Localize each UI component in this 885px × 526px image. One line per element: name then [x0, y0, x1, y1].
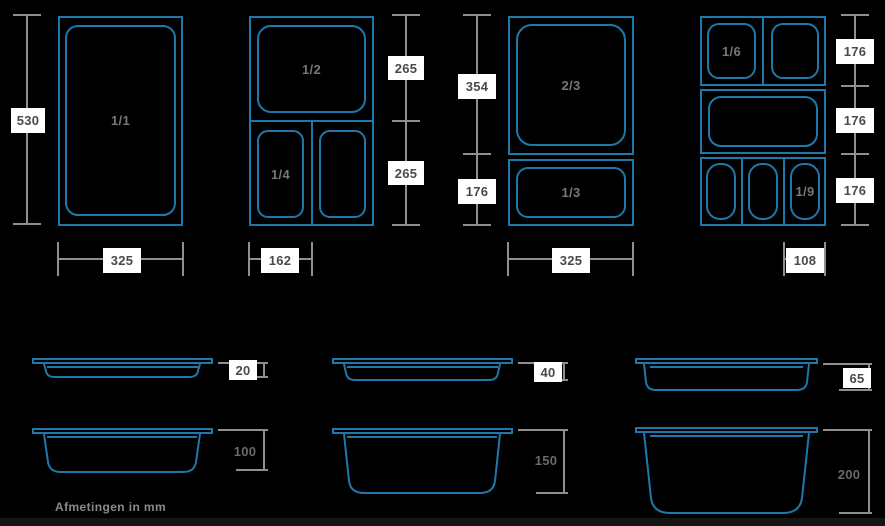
pan-label-1-2: 1/2 [257, 25, 366, 113]
dim-label-20: 20 [229, 360, 257, 380]
dim-label-162: 162 [261, 248, 299, 273]
dim-label-265-top: 265 [388, 56, 424, 80]
pan-rim [636, 428, 817, 432]
dim-label-40: 40 [534, 362, 562, 382]
pan-body [644, 433, 809, 513]
pan-label-1-1: 1/1 [65, 25, 176, 216]
dim-label-325: 325 [103, 248, 141, 273]
pan-label-1-6: 1/6 [707, 23, 756, 79]
dim-label-65: 65 [843, 368, 871, 388]
dim-label-176-bottom: 176 [836, 178, 874, 203]
units-note: Afmetingen in mm [55, 500, 166, 514]
pan-label-1-4: 1/4 [257, 130, 304, 218]
dim-label-100: 100 [225, 442, 265, 460]
dim-label-108: 108 [786, 248, 824, 273]
dim-label-200: 200 [829, 465, 869, 483]
dim-label-265-bottom: 265 [388, 161, 424, 185]
dim-label-530: 530 [11, 108, 45, 133]
pan-label-1-9: 1/9 [790, 163, 820, 220]
dim-label-176-top: 176 [836, 39, 874, 64]
dim-label-176-middle: 176 [836, 108, 874, 133]
dim-label-176-left: 176 [458, 179, 496, 204]
gastronorm-diagram: 1/1 530 325 1/2 1/4 265 265 162 2/ [0, 0, 885, 526]
dim-label-150: 150 [526, 451, 566, 469]
dim-label-325b: 325 [552, 248, 590, 273]
pan-label-1-3: 1/3 [516, 167, 626, 218]
pan-label-2-3: 2/3 [516, 24, 626, 146]
dim-label-354: 354 [458, 74, 496, 99]
